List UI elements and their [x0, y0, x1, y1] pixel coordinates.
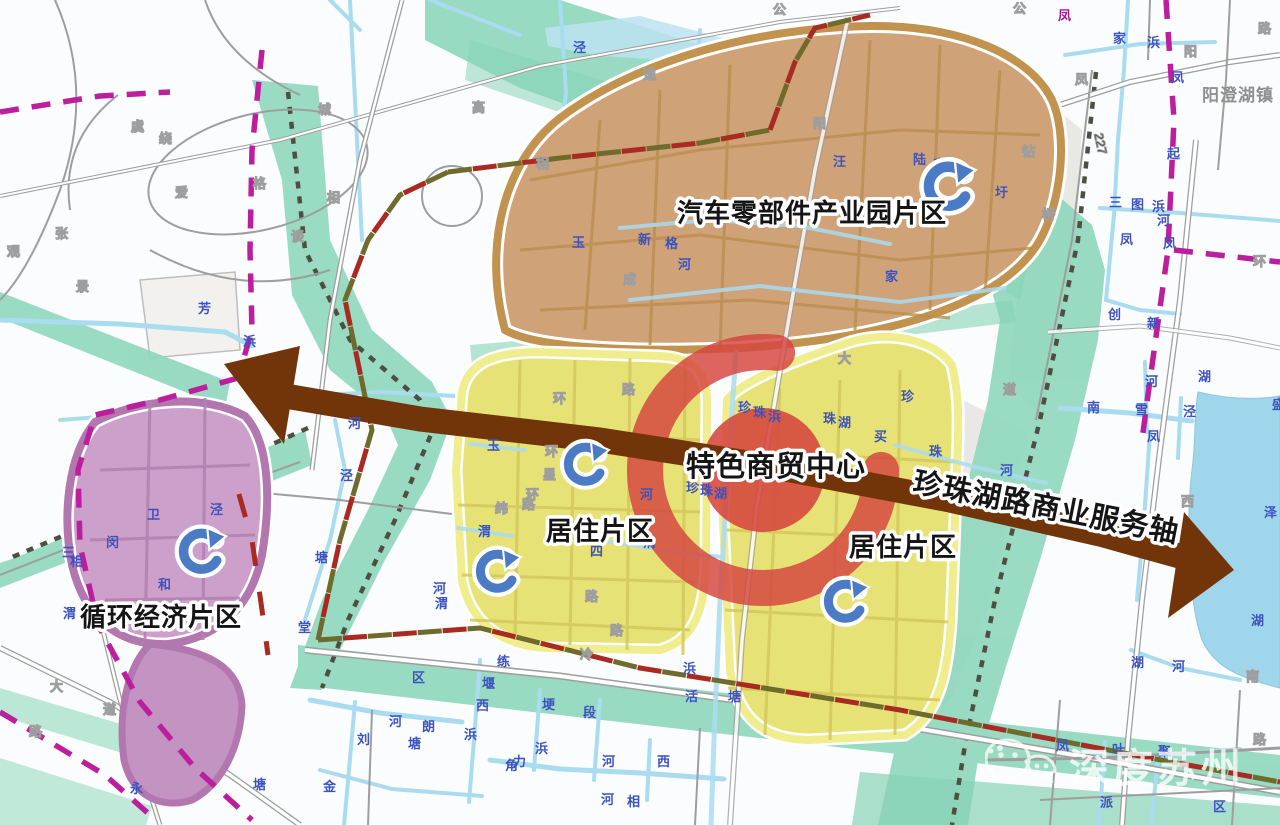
map-text-annotation: 三 [1109, 195, 1122, 210]
label-town: 阳澄湖镇 [1202, 85, 1274, 105]
map-text-annotation: 新 [1147, 316, 1160, 331]
map-text-annotation: 泾 [210, 502, 223, 517]
map-text-annotation: 凤 [1120, 232, 1133, 247]
map-text-annotation: 湖 [1131, 655, 1144, 670]
map-text-annotation: 玉 [487, 438, 500, 453]
map-text-annotation: 景 [76, 279, 89, 294]
map-text-annotation: 张 [55, 226, 69, 241]
map-text-annotation: 创 [1107, 307, 1121, 322]
label-residential-right: 居住片区 [849, 532, 957, 562]
map-text-annotation: 卫 [147, 507, 160, 522]
map-text-annotation: 虞 [131, 119, 145, 134]
map-text-annotation: 冷 [580, 647, 593, 662]
map-text-annotation: 渭 [478, 524, 491, 539]
map-text-annotation: 派 [1100, 795, 1114, 810]
map-text-annotation: 相 [327, 190, 340, 205]
map-text-annotation: 塘 [728, 689, 741, 704]
map-text-annotation: 星 [543, 467, 556, 482]
map-text-annotation: 珍 [738, 400, 752, 415]
map-text-annotation: 珠 [823, 411, 837, 426]
map-text-annotation: 湖 [838, 415, 851, 430]
map-text-annotation: 公 [773, 2, 786, 17]
map-text-annotation: 凤 [1163, 236, 1176, 251]
map-text-annotation: 渭 [435, 596, 448, 611]
map-text-annotation: 珠 [929, 444, 943, 459]
map-text-annotation: 路 [29, 724, 43, 739]
map-text-annotation: 练 [497, 654, 510, 669]
map-text-annotation: 家 [885, 269, 899, 284]
map-text-annotation: 谈 [291, 229, 305, 244]
map-text-annotation: 河 [389, 714, 402, 729]
map-text-annotation: 西 [1181, 494, 1194, 509]
map-text-annotation: 泾 [340, 468, 353, 483]
map-text-annotation: 盛 [1272, 397, 1280, 412]
map-text-annotation: 泽 [1264, 505, 1278, 520]
map-text-annotation: 湖 [1251, 613, 1264, 628]
map-text-annotation: 南 [1246, 669, 1259, 684]
map-text-annotation: 路 [522, 497, 536, 512]
map-text-annotation: 阳 [1184, 44, 1197, 59]
map-text-annotation: 爱 [175, 185, 188, 200]
map-text-annotation: 河 [1157, 213, 1170, 228]
label-industrial-park: 汽车零部件产业园片区 [677, 198, 947, 228]
map-text-annotation: 路 [622, 382, 636, 397]
map-text-annotation: 速 [643, 67, 656, 82]
map-text-annotation: 高 [472, 100, 485, 115]
map-text-annotation: 城 [318, 102, 331, 117]
map-text-annotation: 金 [322, 779, 337, 794]
map-text-annotation: 湖 [714, 486, 727, 501]
map-text-annotation: 渭 [63, 606, 76, 621]
map-text-annotation: 纬 [495, 501, 508, 516]
map-text-annotation: 路 [1253, 732, 1267, 747]
map-text-annotation: 珠 [753, 405, 767, 420]
map-text-annotation: 刘 [357, 732, 370, 747]
map-text-annotation: 堂 [298, 620, 311, 635]
map-text-annotation: 叶 [1112, 742, 1125, 757]
map-text-annotation: 路 [610, 623, 624, 638]
map-text-annotation: 河 [1145, 374, 1158, 389]
map-text-annotation: 相 [536, 156, 549, 171]
map-canvas: 泾速高公公路凤家浜阳凤凤城虞绕张观景爱格相谈相阳汪陆家钻圩桥新格河成家玉起三图浜… [0, 0, 1280, 825]
map-text-annotation: 浜 [768, 409, 781, 424]
map-text-annotation: 买 [874, 429, 887, 444]
map-text-annotation: 环 [1253, 254, 1266, 269]
map-text-annotation: 道 [103, 702, 116, 717]
map-text-annotation: 格 [253, 176, 267, 191]
map-text-annotation: 起 [1166, 146, 1181, 161]
map-text-annotation: 西 [657, 754, 670, 769]
map-text-annotation: 河 [1172, 659, 1185, 674]
map-text-annotation: 四 [590, 544, 603, 559]
map-text-annotation: 钻 [1022, 144, 1035, 159]
map-text-annotation: 塘 [408, 736, 421, 751]
map-text-annotation: 浜 [683, 661, 696, 676]
map-text-annotation: 相 [627, 794, 640, 809]
map-text-annotation: 相 [70, 554, 83, 569]
map-text-annotation: 区 [1213, 799, 1226, 814]
map-text-annotation: 河 [601, 792, 614, 807]
map-text-annotation: 段 [583, 705, 596, 720]
map-text-annotation: 汪 [833, 154, 846, 169]
map-text-annotation: 湖 [1198, 369, 1211, 384]
map-text-annotation: 凤 [1147, 429, 1160, 444]
map-text-annotation: 桥 [1042, 207, 1056, 222]
map-text-annotation: 成 [623, 272, 636, 287]
map-text-annotation: 家 [1113, 31, 1127, 46]
map-text-annotation: 闵 [106, 535, 119, 550]
map-text-annotation: 浜 [1152, 199, 1165, 214]
map-text-annotation: 河 [602, 754, 615, 769]
map-text-annotation: 绕 [159, 131, 172, 146]
map-text-annotation: 浜 [1147, 35, 1160, 50]
map-text-annotation: 阳 [813, 116, 826, 131]
map-text-annotation: 玉 [572, 235, 585, 250]
map-text-annotation: 雪 [1135, 402, 1148, 417]
map-text-annotation: 凤 [1171, 70, 1184, 85]
map-text-annotation: 大 [838, 351, 851, 366]
map-text-annotation: 道 [1003, 382, 1016, 397]
map-text-annotation: 凤 [1056, 738, 1069, 753]
map-text-annotation: 路 [585, 589, 599, 604]
map-text-annotation: 图 [1131, 197, 1144, 212]
map-text-annotation: 格 [665, 236, 679, 251]
map-text-annotation: 环 [545, 444, 558, 459]
map-text-annotation: 活 [685, 689, 698, 704]
map-text-annotation: 泾 [573, 40, 586, 55]
map-text-annotation: 朗 [422, 719, 435, 734]
map-text-annotation: 堰 [482, 676, 495, 691]
map-text-annotation: 南 [1087, 400, 1100, 415]
map-text-annotation: 新 [638, 232, 651, 247]
map-text-annotation: 路 [1258, 21, 1272, 36]
map-text-annotation: 环 [553, 391, 566, 406]
map-text-annotation: 角 [505, 758, 518, 773]
label-commerce-center: 特色商贸中心 [686, 449, 866, 483]
map-text-annotation: 和 [158, 577, 171, 592]
map-text-annotation: 河 [348, 416, 361, 431]
planning-map: 泾速高公公路凤家浜阳凤凤城虞绕张观景爱格相谈相阳汪陆家钻圩桥新格河成家玉起三图浜… [0, 0, 1280, 825]
map-text-annotation: 凤 [1075, 72, 1088, 87]
map-text-annotation: 聚 [1157, 744, 1172, 759]
map-text-annotation: 陆 [913, 152, 926, 167]
map-text-annotation: 西 [476, 698, 489, 713]
map-text-annotation: 浜 [464, 727, 477, 742]
map-text-annotation: 珍 [901, 389, 915, 404]
map-text-annotation: 河 [640, 487, 653, 502]
map-text-annotation: 河 [678, 257, 691, 272]
map-text-annotation: 河 [1000, 463, 1013, 478]
map-text-annotation: 河 [433, 581, 446, 596]
map-text-annotation: 永 [129, 781, 144, 796]
map-text-annotation: 泾 [1183, 404, 1196, 419]
map-text-annotation: 浜 [243, 334, 256, 349]
map-text-annotation: 浜 [535, 741, 548, 756]
map-text-annotation: 区 [412, 670, 425, 685]
label-residential-left: 居住片区 [546, 516, 654, 546]
map-text-annotation: 圩 [995, 185, 1008, 200]
map-text-annotation: 塘 [253, 777, 266, 792]
map-text-annotation: 观 [7, 244, 20, 259]
map-text-annotation: 芳 [198, 301, 211, 316]
map-text-annotation: 凤 [1058, 8, 1071, 23]
map-text-annotation: 塘 [315, 550, 328, 565]
map-text-annotation: 公 [1013, 1, 1026, 16]
map-text-annotation: 大 [50, 679, 63, 694]
map-text-annotation: 珠 [700, 483, 714, 498]
label-circular-economy: 循环经济片区 [80, 602, 242, 632]
map-text-annotation: 埂 [542, 697, 556, 712]
